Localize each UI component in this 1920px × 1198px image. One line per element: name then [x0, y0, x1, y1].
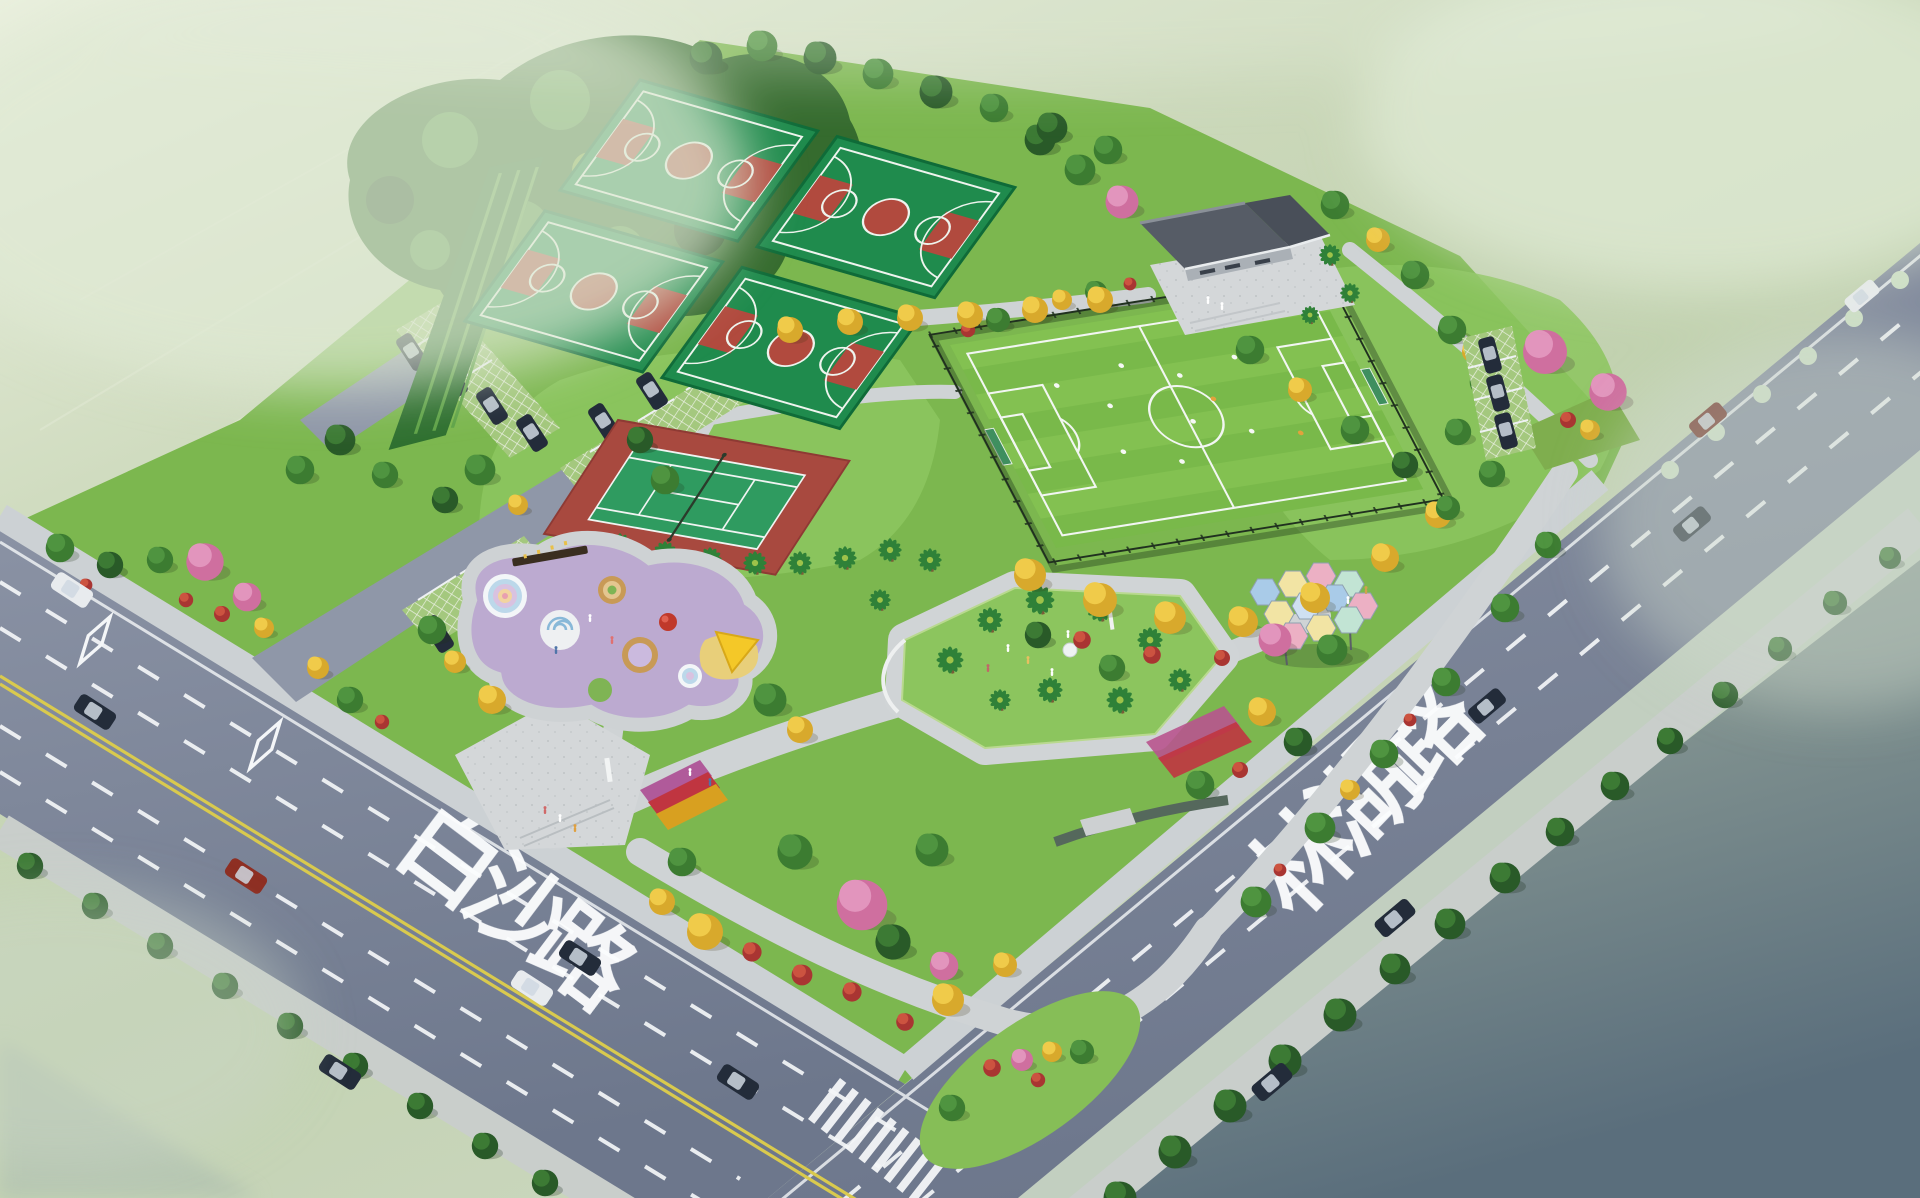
rainbow-rings: [483, 574, 527, 618]
spiral-slide-pod: [540, 610, 580, 650]
scene-canvas: 白沙路 林湖路: [0, 0, 1920, 1198]
park-aerial-rendering: 白沙路 林湖路: [0, 0, 1920, 1198]
children-playground: [464, 538, 770, 725]
